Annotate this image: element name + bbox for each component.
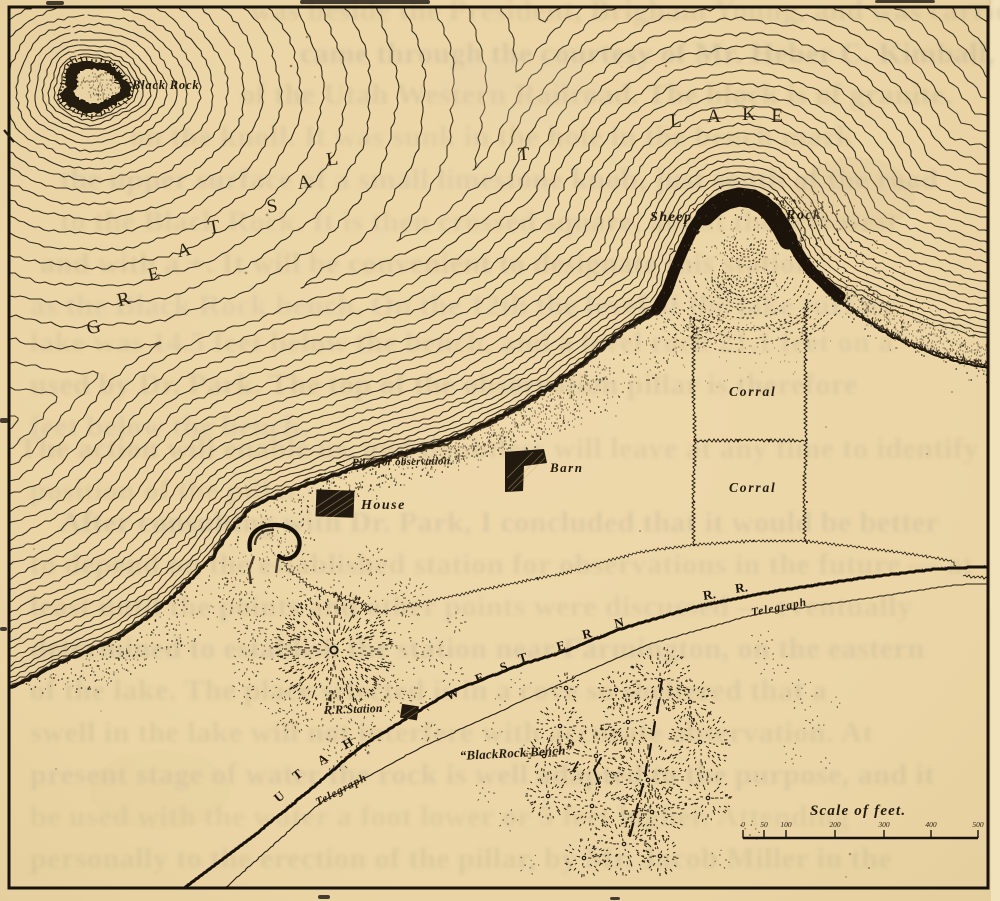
- svg-text:Sheep: Sheep: [650, 210, 693, 225]
- svg-text:R.: R.: [702, 586, 717, 603]
- svg-text:A: A: [707, 106, 721, 127]
- svg-text:R.R.Station: R.R.Station: [323, 701, 384, 717]
- svg-text:50: 50: [760, 820, 768, 829]
- svg-text:of the lake. The place select: of the lake. The place selected is in a …: [30, 674, 827, 707]
- svg-text:Black Rock: Black Rock: [131, 78, 199, 92]
- svg-text:E: E: [771, 106, 783, 127]
- svg-text:Corral: Corral: [729, 384, 777, 399]
- svg-text:determined to establish the st: determined to establish the station near…: [30, 632, 925, 665]
- svg-text:500: 500: [972, 820, 984, 829]
- svg-text:300: 300: [877, 820, 890, 829]
- svg-text:Barn: Barn: [549, 460, 583, 475]
- svg-text:After consulting with Dr. Park: After consulting with Dr. Park, I conclu…: [60, 506, 939, 539]
- svg-text:House: House: [360, 498, 406, 513]
- svg-text:Piles for observation: Piles for observation: [352, 455, 450, 469]
- svg-text:R.: R.: [734, 579, 749, 596]
- svg-text:100: 100: [780, 820, 792, 829]
- svg-text:Scale of feet.: Scale of feet.: [810, 803, 906, 819]
- svg-text:K: K: [742, 104, 756, 125]
- svg-text:as the Black Rock bench. On t: as the Black Rock bench. On the 12th the…: [30, 289, 898, 322]
- svg-text:personally to the erection of: personally to the erection of the pillar…: [30, 842, 892, 875]
- svg-text:200: 200: [829, 820, 841, 829]
- svg-text:T: T: [517, 144, 530, 166]
- svg-text:0: 0: [741, 820, 745, 829]
- svg-text:swell in the lake will not int: swell in the lake will not interfere wit…: [30, 716, 873, 749]
- svg-text:came through the courtesy of M: came through the courtesy of Mr. Heber C…: [300, 37, 995, 70]
- svg-text:L: L: [670, 111, 682, 132]
- svg-text:Corral: Corral: [729, 480, 777, 495]
- svg-text:400: 400: [925, 820, 937, 829]
